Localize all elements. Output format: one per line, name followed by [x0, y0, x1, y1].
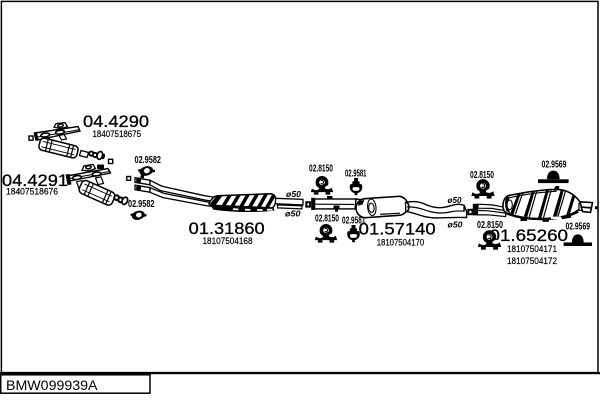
svg-text:BMW099939A: BMW099939A: [6, 378, 98, 394]
svg-text:02.8150: 02.8150: [470, 169, 494, 181]
svg-text:02.9582: 02.9582: [135, 154, 162, 166]
svg-text:02.9582: 02.9582: [128, 198, 155, 210]
svg-text:02.9569: 02.9569: [542, 159, 567, 171]
svg-text:01.57140: 01.57140: [359, 220, 436, 239]
svg-text:18107504172: 18107504172: [507, 256, 557, 266]
svg-text:ø50: ø50: [448, 220, 463, 230]
svg-text:ø50: ø50: [448, 195, 462, 205]
svg-text:18407518675: 18407518675: [93, 129, 142, 139]
svg-text:ø50: ø50: [285, 209, 301, 219]
svg-text:18407518676: 18407518676: [6, 187, 58, 197]
svg-text:02.8150: 02.8150: [309, 163, 333, 175]
svg-text:18107504171: 18107504171: [507, 244, 557, 254]
svg-text:18107504168: 18107504168: [203, 236, 253, 246]
svg-text:ø50: ø50: [286, 189, 301, 199]
svg-text:02.9569: 02.9569: [566, 221, 591, 233]
svg-text:18107504170: 18107504170: [377, 238, 425, 248]
svg-text:02.9581: 02.9581: [345, 168, 367, 180]
svg-text:02.8150: 02.8150: [477, 219, 503, 231]
svg-text:02.8150: 02.8150: [315, 213, 339, 225]
